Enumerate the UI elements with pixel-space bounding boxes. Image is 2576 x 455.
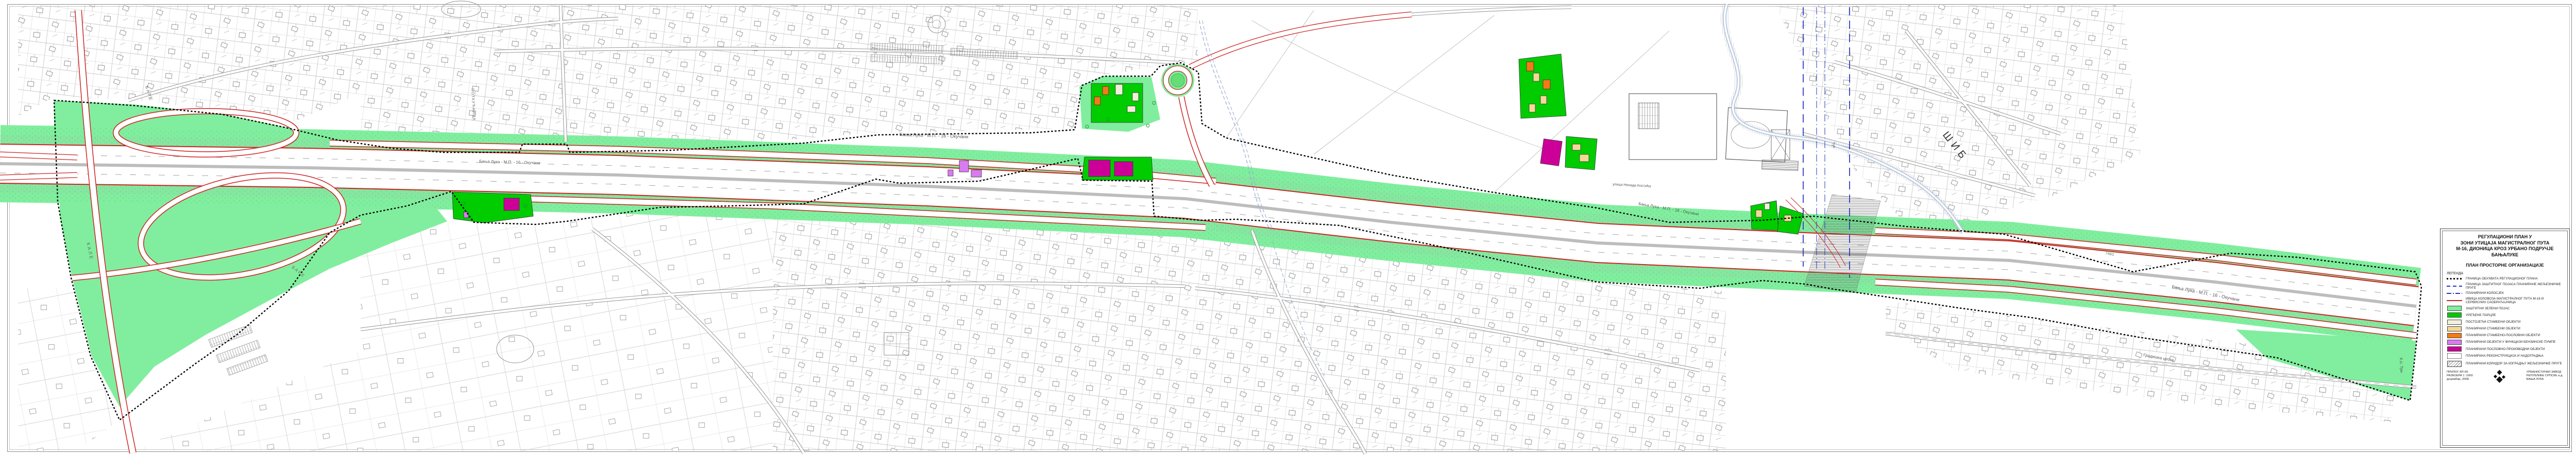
dotted-line-swatch bbox=[2447, 278, 2462, 279]
legend-label: ГРАНИЦА ОБУХВАТА РЕГУЛАЦИОНОГ ПЛАНА bbox=[2466, 277, 2538, 281]
legend-symbol bbox=[2447, 320, 2462, 325]
planned-mixed-building bbox=[1527, 62, 1534, 71]
legend-label: ПЛАНИРАНА РЕКОНСТРУКЦИЈА И НАДОГРАДЊА bbox=[2466, 354, 2544, 358]
legend-item-business-production: ПЛАНИРАНИ ПОСЛОВНО-ПРОИЗВОДНИ ОБЈЕКТИ bbox=[2447, 346, 2563, 352]
plan-sheet: { "colors": { "mint_green": "#80ee9e", "… bbox=[0, 0, 2576, 455]
legend-symbol bbox=[2447, 286, 2462, 287]
scale-text: РАЗМЈЕРА 1 :1000 bbox=[2447, 374, 2473, 378]
logo-diamond bbox=[2502, 375, 2505, 379]
planned-residential-building bbox=[1572, 144, 1581, 150]
legend-label: УРЕЂЕНЕ ПАРЦЛЕ bbox=[2466, 313, 2496, 317]
legend-item-rail-protection: ГРАНИЦА ЗАШТИТНОГ ПОЈАСА ПЛАНИРАНЕ ЖЕЉЕЗ… bbox=[2447, 283, 2563, 290]
large-parcel-lines bbox=[1226, 10, 1669, 192]
plan-title-line: РЕГУЛАЦИОНИ ПЛАН У bbox=[2447, 234, 2563, 240]
legend-label: ПЛАНИРАНИ СТАМБЕНИ ОБЈЕКТИ bbox=[2466, 327, 2520, 330]
legend-symbol bbox=[2447, 333, 2462, 338]
legend-symbol bbox=[2447, 346, 2462, 352]
plan-map: Бања Лука - М.П. - 16 - Окучани Бања Лук… bbox=[0, 0, 2576, 455]
parcel-texture-zone bbox=[361, 5, 1198, 150]
highway-name-label: Бања Лука - М.П. - 16 - Окучани bbox=[900, 132, 969, 139]
planned-residential-building bbox=[1540, 96, 1547, 104]
legend-label: ПЛАНИРАНИ ПОСЛОВНО-ПРОИЗВОДНИ ОБЈЕКТИ bbox=[2466, 347, 2545, 351]
existing-residential-building bbox=[1115, 84, 1123, 95]
business-production-building bbox=[1089, 160, 1110, 177]
planned-residential-building bbox=[1756, 210, 1762, 217]
legend-symbol bbox=[2447, 326, 2462, 331]
legend-heading: ЛЕГЕНДА bbox=[2447, 272, 2563, 275]
business-production-building bbox=[1540, 139, 1562, 166]
legend-item-arranged-parcels: УРЕЂЕНЕ ПАРЦЛЕ bbox=[2447, 312, 2563, 318]
title-block-inner: РЕГУЛАЦИОНИ ПЛАН У ЗОНИ УТИЦАЈА МАГИСТРА… bbox=[2442, 231, 2568, 446]
attachment-number: ПРИЛОГ БР.:06 bbox=[2447, 371, 2473, 374]
arranged-parcel bbox=[1565, 136, 1597, 170]
industrial-building-annex bbox=[1638, 103, 1659, 129]
legend-item-reconstruction: ПЛАНИРАНА РЕКОНСТРУКЦИЈА И НАДОГРАДЊА bbox=[2447, 353, 2563, 359]
parcel-texture-zone bbox=[1775, 5, 2141, 224]
legend-item-planned-track: ПЛАНИРАНИ КОЛОСЈЕК bbox=[2447, 291, 2563, 295]
color-swatch bbox=[2447, 333, 2462, 338]
plan-subtitle: ПЛАН ПРОСТОРНЕ ОРГАНИЗАЦИЈЕ bbox=[2447, 262, 2563, 268]
legend-symbol bbox=[2447, 353, 2462, 359]
legend-label: ИВИЦА КОЛОВОЗА МАГИСТРАЛНОГ ПУТА М-16 И … bbox=[2466, 297, 2563, 304]
org-name-line: УРБАНИСТИЧКИ ЗАВОД bbox=[2527, 371, 2563, 374]
footer-left: ПРИЛОГ БР.:06 РАЗМЈЕРА 1 :1000 децембар,… bbox=[2447, 371, 2473, 381]
legend-item-rail-corridor: ПЛАНИРАНИ КОРИДОР ЗА ИЗГРАДЊУ ЖЕЉЕЗНИЧКЕ… bbox=[2447, 361, 2563, 367]
planned-residential-building bbox=[1533, 73, 1539, 81]
color-swatch bbox=[2447, 326, 2462, 331]
arranged-parcel bbox=[1519, 54, 1566, 118]
color-swatch bbox=[2447, 340, 2462, 345]
legend-label: ЗАШТИТНИ ЗЕЛЕНИ ПОЈАС bbox=[2466, 307, 2510, 310]
legend-item-green-belt: ЗАШТИТНИ ЗЕЛЕНИ ПОЈАС bbox=[2447, 306, 2563, 311]
date-text: децембар, 2008. bbox=[2447, 378, 2473, 381]
legend-label: ПОСТОЈЕЋИ СТАМБЕНИ ОБЈЕКТИ bbox=[2466, 320, 2520, 324]
color-swatch bbox=[2447, 306, 2462, 311]
legend-label: ПЛАНИРАНИ КОЛОСЈЕК bbox=[2466, 291, 2504, 295]
legend-label: ПЛАНИРАНИ ОБЈЕКТИ У ФУНКЦИЈИ БЕНЗИНСКЕ П… bbox=[2466, 340, 2555, 344]
planned-residential-building bbox=[1580, 154, 1589, 162]
legend-symbol bbox=[2447, 312, 2462, 318]
dotted-box-swatch bbox=[2447, 353, 2462, 359]
business-production-building bbox=[504, 198, 519, 211]
roundabout-island bbox=[1171, 74, 1184, 87]
roundabout bbox=[1161, 64, 1194, 97]
roundabout-ne-road-surface bbox=[1190, 14, 1412, 67]
existing-residential-building bbox=[1132, 93, 1139, 101]
tree-icon bbox=[1146, 124, 1149, 127]
legend-symbol bbox=[2447, 340, 2462, 345]
planned-residential-building bbox=[1529, 104, 1535, 112]
legend-symbol bbox=[2447, 361, 2462, 367]
legend-label: ПЛАНИРАНИ СТАМБЕНО-ПОСЛОВНИ ОБЈЕКТИ bbox=[2466, 334, 2540, 337]
roundabout-ne-road-red-edge bbox=[1190, 14, 1412, 67]
arranged-parcel bbox=[452, 192, 533, 223]
logo-diamond bbox=[2497, 370, 2502, 375]
existing-residential-building bbox=[1127, 106, 1136, 112]
legend-symbol bbox=[2447, 278, 2462, 279]
logo-diamond bbox=[2494, 375, 2497, 378]
business-production-building bbox=[1114, 162, 1133, 176]
legend-item-road-edge: ИВИЦА КОЛОВОЗА МАГИСТРАЛНОГ ПУТА М-16 И … bbox=[2447, 297, 2563, 304]
cadastre-label-ko-trn: К.о. Трн bbox=[2399, 358, 2404, 373]
petrol-station-building bbox=[971, 170, 981, 177]
org-name-line: БАЊА ЛУКА bbox=[2527, 378, 2563, 381]
footer-right: УРБАНИСТИЧКИ ЗАВОД РЕПУБЛИКЕ СРПСКЕ а.д.… bbox=[2527, 371, 2563, 381]
legend-symbol bbox=[2447, 293, 2462, 294]
legend-item-existing-residential: ПОСТОЈЕЋИ СТАМБЕНИ ОБЈЕКТИ bbox=[2447, 320, 2563, 325]
legend-symbol bbox=[2447, 306, 2462, 311]
legend-item-planned-residential: ПЛАНИРАНИ СТАМБЕНИ ОБЈЕКТИ bbox=[2447, 326, 2563, 331]
planned-mixed-building bbox=[1543, 80, 1550, 89]
panel-footer: ПРИЛОГ БР.:06 РАЗМЈЕРА 1 :1000 децембар,… bbox=[2447, 371, 2563, 383]
plan-title-line: БАЊАЛУКЕ bbox=[2447, 252, 2563, 258]
color-swatch bbox=[2447, 346, 2462, 352]
legend-symbol bbox=[2447, 300, 2462, 301]
petrol-station-building bbox=[948, 170, 953, 176]
existing-residential-building bbox=[1765, 203, 1770, 209]
petrol-station-building bbox=[959, 161, 969, 172]
planned-mixed-building bbox=[1094, 97, 1100, 105]
blue-dashdot-line-swatch bbox=[2447, 293, 2462, 294]
legend-label: ПЛАНИРАНИ КОРИДОР ЗА ИЗГРАДЊУ ЖЕЉЕЗНИЧКЕ… bbox=[2466, 362, 2562, 365]
org-name-line: РЕПУБЛИКЕ СРПСКЕ а.д. bbox=[2527, 374, 2563, 378]
legend-item-mixed-use: ПЛАНИРАНИ СТАМБЕНО-ПОСЛОВНИ ОБЈЕКТИ bbox=[2447, 333, 2563, 338]
red-line-swatch bbox=[2447, 300, 2462, 301]
color-swatch bbox=[2447, 320, 2462, 325]
planned-mixed-building bbox=[1103, 86, 1109, 95]
blue-dashed-line-swatch bbox=[2447, 286, 2462, 287]
street-label-nenad-kostic: улица Ненада Костића bbox=[1613, 182, 1651, 188]
legend-item-boundary: ГРАНИЦА ОБУХВАТА РЕГУЛАЦИОНОГ ПЛАНА bbox=[2447, 277, 2563, 281]
plan-title-line: М-16, ДИОНИЦА КРОЗ УРБАНО ПОДРУЧЈЕ bbox=[2447, 246, 2563, 252]
urban-institute-logo-icon bbox=[2493, 371, 2506, 383]
legend-label: ГРАНИЦА ЗАШТИТНОГ ПОЈАСА ПЛАНИРАНЕ ЖЕЉЕЗ… bbox=[2466, 283, 2563, 290]
hatched-box-swatch bbox=[2447, 361, 2462, 367]
platform-hatched bbox=[1762, 160, 1799, 170]
title-block-panel: РЕГУЛАЦИОНИ ПЛАН У ЗОНИ УТИЦАЈА МАГИСТРА… bbox=[2440, 229, 2570, 448]
legend-item-petrol-station: ПЛАНИРАНИ ОБЈЕКТИ У ФУНКЦИЈИ БЕНЗИНСКЕ П… bbox=[2447, 340, 2563, 345]
color-swatch bbox=[2447, 312, 2462, 318]
plan-title-line: ЗОНИ УТИЦАЈА МАГИСТРАЛНОГ ПУТА bbox=[2447, 240, 2563, 247]
